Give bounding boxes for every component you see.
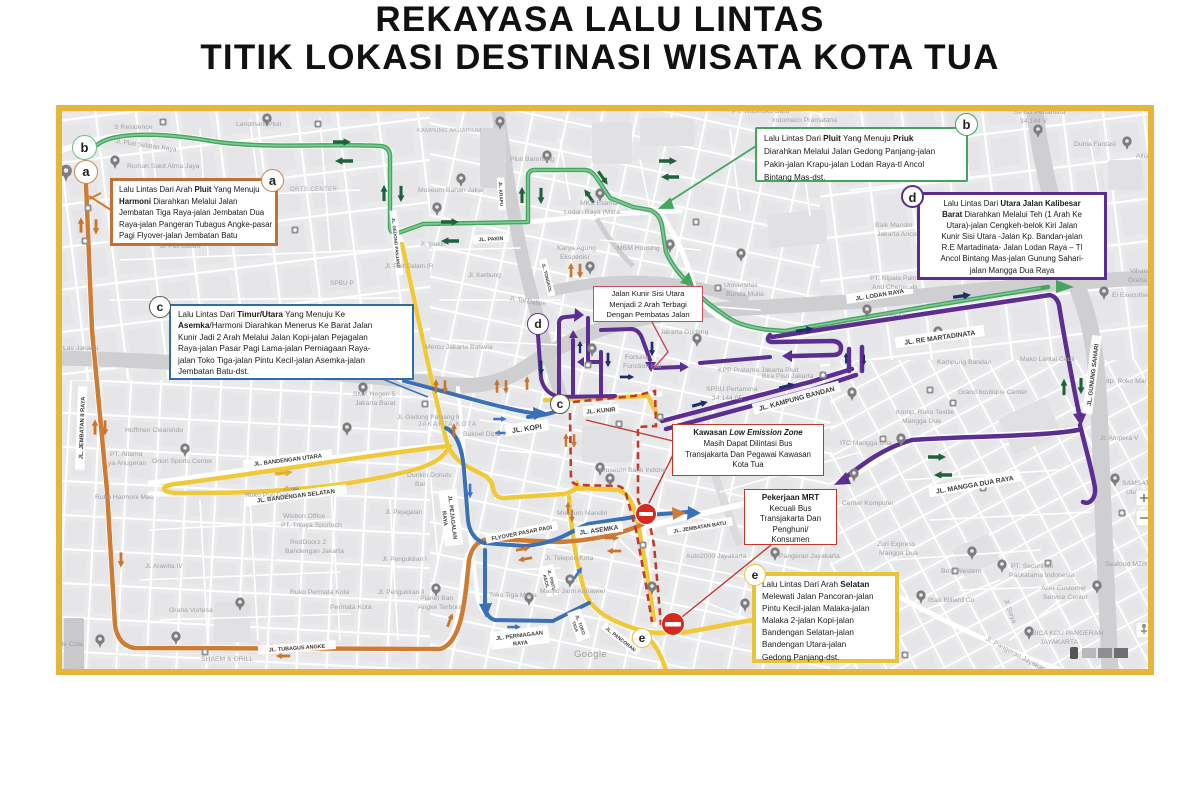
svg-text:Google: Google [574, 649, 607, 660]
svg-text:SPBU Pertamina: SPBU Pertamina [706, 386, 758, 393]
svg-text:SPBU Pertamina: SPBU Pertamina [1014, 111, 1066, 116]
svg-text:Mangga Dua: Mangga Dua [902, 418, 941, 425]
svg-text:Museum Bahan Jakar: Museum Bahan Jakar [418, 187, 485, 194]
svg-text:JAYAKARTA: JAYAKARTA [1040, 639, 1078, 646]
svg-text:Las Jakarta: Las Jakarta [63, 345, 98, 352]
svg-text:34.144 V: 34.144 V [1020, 118, 1048, 125]
svg-text:MBM Housing: MBM Housing [617, 245, 660, 252]
svg-text:Auto2000 Jayakarta: Auto2000 Jayakarta [686, 553, 747, 560]
svg-text:Vihara Mahavira: Vihara Mahavira [1130, 268, 1148, 275]
svg-text:SAMSAT: SAMSAT [1122, 480, 1148, 487]
svg-text:Jakarta Ancol: Jakarta Ancol [877, 231, 918, 238]
svg-text:Lodan Raya (Mitra..: Lodan Raya (Mitra.. [564, 209, 624, 216]
svg-text:PT. Wilorittiko Baru: PT. Wilorittiko Baru [732, 111, 790, 115]
svg-text:SPBU P: SPBU P [330, 280, 354, 287]
svg-text:Bunda Mulia: Bunda Mulia [726, 291, 764, 298]
svg-text:SHAEM & GRILL: SHAEM & GRILL [201, 656, 253, 663]
svg-text:ISak Billiard Co: ISak Billiard Co [928, 597, 975, 604]
svg-text:ORTS CENTER: ORTS CENTER [290, 187, 338, 193]
svg-text:Mercu Jakarta Batavia: Mercu Jakarta Batavia [425, 344, 493, 351]
svg-text:And Chemicals: And Chemicals [872, 284, 918, 291]
svg-text:Jakarta Gudang: Jakarta Gudang [660, 329, 709, 336]
svg-text:Acer Customer: Acer Customer [1041, 585, 1087, 592]
svg-text:MKS Etamla: MKS Etamla [580, 200, 618, 207]
svg-text:Allia: Allia [1136, 153, 1148, 160]
svg-text:Jakarta Barat: Jakarta Barat [355, 400, 396, 407]
svg-text:Hoffmen Cleanindo: Hoffmen Cleanindo [125, 427, 183, 434]
svg-text:Jl. Pengukiran I: Jl. Pengukiran I [382, 556, 427, 563]
svg-text:Permata Kota: Permata Kota [330, 604, 372, 611]
svg-text:Pluit Baronang: Pluit Baronang [510, 156, 555, 163]
svg-text:Jl. Ipakin: Jl. Ipakin [420, 241, 446, 248]
svg-text:Komp. Ruko Textile: Komp. Ruko Textile [896, 409, 955, 416]
svg-text:Bakoel Dipa: Bakoel Dipa [463, 431, 500, 438]
svg-text:Best Western: Best Western [941, 568, 982, 575]
svg-text:Museum Mandiri: Museum Mandiri [557, 510, 608, 517]
svg-text:Karya Agung: Karya Agung [557, 245, 596, 252]
svg-text:ITC Mangga Dua: ITC Mangga Dua [840, 440, 892, 447]
svg-text:S Residence: S Residence [114, 124, 153, 131]
svg-text:Jl. Kerbung: Jl. Kerbung [468, 272, 501, 279]
svg-text:Graha Pusat-: Graha Pusat- [1128, 277, 1148, 284]
svg-text:Jl. Pengukiran II: Jl. Pengukiran II [378, 589, 425, 596]
svg-text:Jl. Puit Dalam IR: Jl. Puit Dalam IR [385, 263, 434, 270]
svg-text:Ruko Permata Kota: Ruko Permata Kota [290, 589, 350, 596]
svg-text:ya Anugeran: ya Anugeran [108, 460, 146, 467]
svg-text:Itp. Roko Mar: Itp. Roko Mar [1106, 378, 1148, 385]
svg-text:Service Center: Service Center [1043, 594, 1089, 601]
svg-text:El Executive: El Executive [1112, 292, 1148, 299]
svg-text:34.144.05: 34.144.05 [712, 395, 742, 402]
svg-text:Rumah Sakit Atma Jaya: Rumah Sakit Atma Jaya [127, 163, 200, 170]
svg-text:Bira Piso Jakarta: Bira Piso Jakarta [762, 373, 814, 380]
svg-text:PT. Altama: PT. Altama [110, 451, 143, 458]
svg-text:PT. Trijaya Sportech: PT. Trijaya Sportech [281, 522, 342, 529]
svg-text:Dunia Fantasi: Dunia Fantasi [1074, 141, 1116, 148]
svg-text:PT. Nipala Paint: PT. Nipala Paint [870, 275, 918, 282]
svg-text:PT. Securindo: PT. Securindo [1011, 563, 1054, 570]
svg-text:Zuri Express: Zuri Express [877, 541, 916, 548]
svg-text:Mako Lantai Cedil: Mako Lantai Cedil [1020, 356, 1075, 363]
svg-text:KAMPUNG AKUARIUM: KAMPUNG AKUARIUM [417, 128, 481, 134]
svg-text:BICA KCU PANGERAN: BICA KCU PANGERAN [1032, 630, 1103, 637]
svg-text:Hoband: Hoband [880, 311, 904, 318]
svg-text:Bar: Bar [415, 481, 426, 488]
svg-text:Jl. Gedong Panjang II: Jl. Gedong Panjang II [397, 414, 460, 421]
svg-text:Kampung Bandan: Kampung Bandan [937, 359, 992, 366]
svg-text:RedDoorz 2: RedDoorz 2 [290, 539, 326, 546]
svg-text:JAKARTA KOTA: JAKARTA KOTA [418, 421, 477, 428]
svg-text:Graha Vortesa: Graha Vortesa [169, 607, 213, 614]
svg-text:Jl. Ampera V: Jl. Ampera V [1100, 435, 1139, 442]
svg-text:SMK Negeri 5: SMK Negeri 5 [353, 391, 396, 398]
svg-text:Grand boutique Center: Grand boutique Center [958, 389, 1028, 396]
svg-text:Bandengan Jakarta: Bandengan Jakarta [285, 548, 344, 555]
svg-text:Function Hal: Function Hal [623, 363, 662, 370]
svg-text:Ekspedisi: Ekspedisi [560, 254, 590, 261]
svg-text:Pangeran Jayakarta: Pangeran Jayakarta [779, 553, 840, 560]
svg-text:Toko Tiga Mesa: Toko Tiga Mesa [489, 592, 537, 599]
svg-text:Landmark Pluit: Landmark Pluit [236, 121, 281, 128]
svg-text:Mangga Dua: Mangga Dua [879, 550, 918, 557]
svg-text:ble Cola: ble Cola [62, 641, 83, 648]
svg-text:Jl. Telepon Kota: Jl. Telepon Kota [545, 555, 593, 562]
svg-text:Packatama Indonesia: Packatama Indonesia [1009, 572, 1075, 579]
svg-text:Center Komputer: Center Komputer [842, 500, 894, 507]
svg-text:Baik Mandin: Baik Mandin [875, 222, 913, 229]
svg-text:Planet Ban: Planet Ban [420, 595, 453, 602]
svg-text:Indomaco Pramatana: Indomaco Pramatana [772, 117, 837, 124]
svg-text:Masjid Jami Annawier: Masjid Jami Annawier [540, 588, 606, 595]
svg-text:Dunkin Donuts: Dunkin Donuts [407, 472, 452, 479]
svg-text:Jl. Arawita IV: Jl. Arawita IV [145, 563, 183, 570]
svg-text:Museum Bank Indone: Museum Bank Indone [600, 467, 666, 474]
svg-text:Fortuna: Fortuna [625, 354, 649, 361]
svg-text:Seafood MZR: Seafood MZR [1105, 561, 1147, 568]
svg-text:Ruko Puri Delt: Ruko Puri Delt [245, 492, 289, 499]
svg-text:Ruko Harmoni Mas: Ruko Harmoni Mas [95, 494, 154, 501]
svg-text:Jl. Pejagalan: Jl. Pejagalan [385, 509, 423, 516]
svg-text:Wisbon Office: Wisbon Office [283, 513, 325, 520]
svg-text:Universitas: Universitas [724, 282, 758, 289]
svg-text:Orion Sports Center: Orion Sports Center [152, 458, 213, 465]
svg-text:Angke Terbora: Angke Terbora [418, 604, 462, 611]
